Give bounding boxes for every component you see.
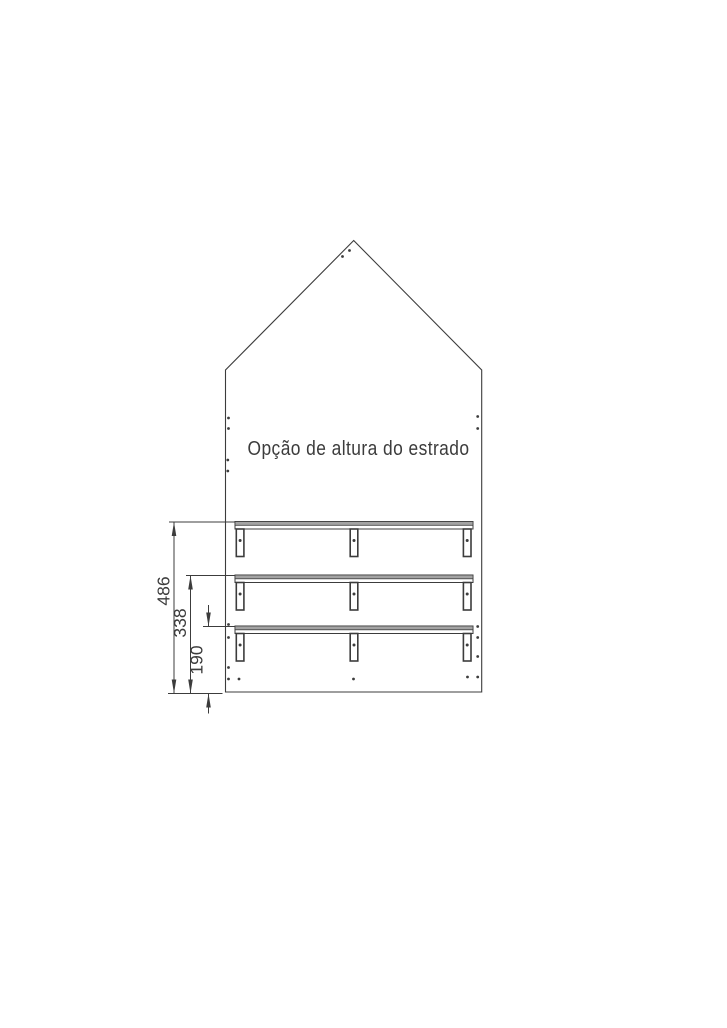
slat-rail-bottom xyxy=(235,626,473,661)
dimension-label-190: 190 xyxy=(187,645,207,674)
screw-hole-dot xyxy=(227,623,230,626)
arrowhead-down-icon xyxy=(206,613,211,627)
drawing-title: Opção de altura do estrado xyxy=(248,438,470,460)
drawing-page: 486 338 190 Opção de altura do estrado xyxy=(0,0,727,1028)
screw-hole-dot xyxy=(227,666,230,669)
slat-rail-middle xyxy=(235,575,473,610)
screw-hole-dot xyxy=(226,459,229,462)
arrowhead-down-icon xyxy=(172,680,177,694)
screw-hole-dot xyxy=(476,625,479,628)
arrowhead-up-icon xyxy=(172,522,177,536)
dimension-label-338: 338 xyxy=(170,608,190,637)
screw-hole-dot xyxy=(227,417,230,420)
house-panel-outline xyxy=(226,241,482,693)
screw-hole-dot xyxy=(348,249,351,252)
screw-hole-dot xyxy=(476,655,479,658)
slat-rail-top xyxy=(235,522,473,557)
technical-drawing-canvas: 486 338 190 Opção de altura do estrado xyxy=(0,0,727,1028)
screw-hole-dot xyxy=(226,470,229,473)
screw-hole-dot xyxy=(227,678,230,681)
screw-hole-dot xyxy=(341,255,344,258)
screw-hole-dot xyxy=(227,636,230,639)
screw-hole-dot xyxy=(466,676,469,679)
dimension-label-486: 486 xyxy=(154,576,174,605)
arrowhead-up-icon xyxy=(188,576,193,590)
arrowhead-down-icon xyxy=(188,680,193,694)
screw-hole-dot xyxy=(476,676,479,679)
arrowhead-up-icon xyxy=(206,694,211,708)
screw-hole-dot xyxy=(476,636,479,639)
screw-hole-dot xyxy=(476,415,479,418)
screw-hole-dot xyxy=(227,427,230,430)
peak-screw-holes xyxy=(341,249,351,258)
screw-hole-dot xyxy=(238,678,241,681)
screw-hole-dot xyxy=(476,427,479,430)
dimension-486: 486 xyxy=(154,522,177,694)
screw-hole-dot xyxy=(352,678,355,681)
